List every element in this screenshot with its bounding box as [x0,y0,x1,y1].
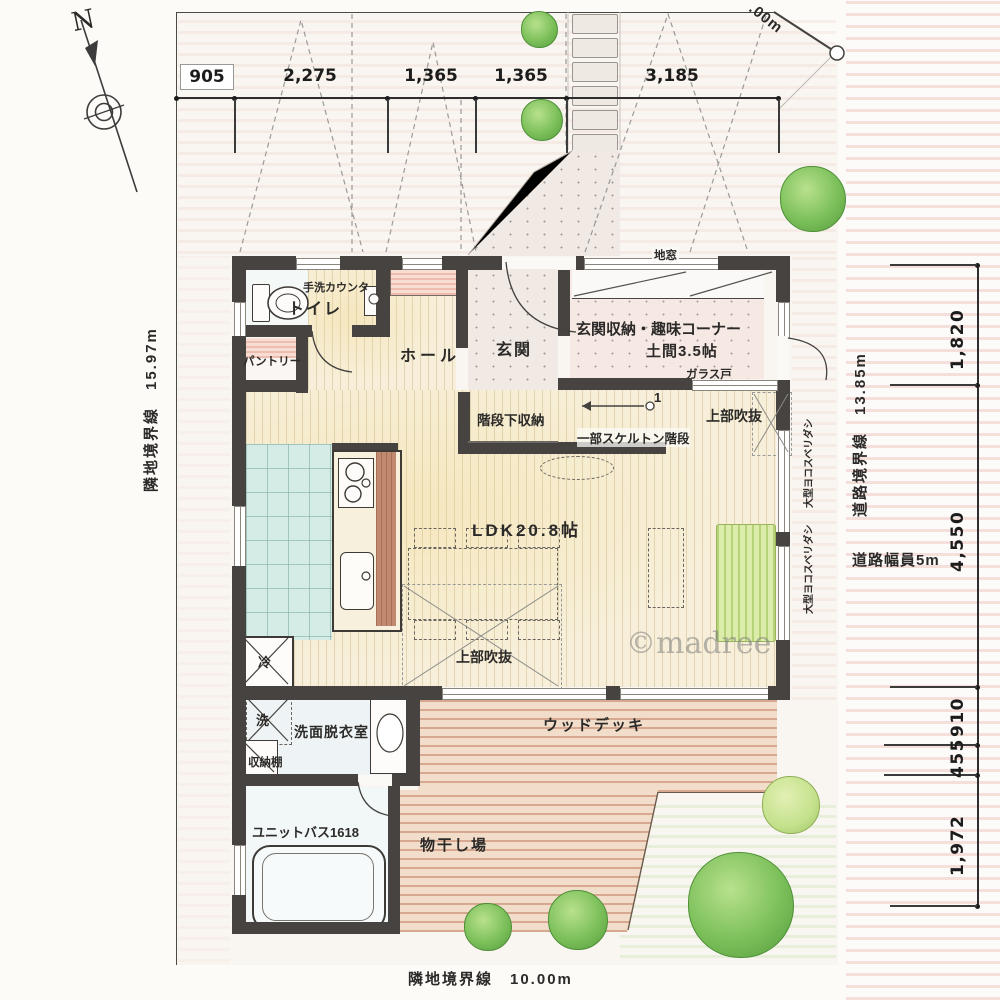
floor-window-label: 地窓 [652,247,679,263]
void-label-1: 上部吹抜 [706,406,762,426]
boundary-right-label: 道路境界線 13.85m [849,352,870,517]
wall-segment [776,380,790,430]
sliding-door [620,688,770,700]
bathtub-inner [262,853,374,921]
entrance-storage-label-1: 玄関収納・趣味コーナー [576,318,741,339]
entrance-storage-label-2: 土間3.5帖 [646,340,718,361]
tree-icon [688,852,794,958]
wall-segment [558,270,570,336]
entrance-door-opening [502,257,576,269]
dim-tick [234,99,236,153]
window-large-1 [778,430,790,534]
void-outline [402,584,562,690]
stepping-stone [572,38,618,58]
shoe-cabinet [390,269,458,296]
ldk-label: LDK20.8帖 [472,516,581,541]
boundary-bottom-label: 隣地境界線 10.00m [408,968,573,989]
wall-segment [458,442,576,454]
washroom-door-opening [358,775,392,785]
wood-deck-area [418,697,777,793]
wall-segment [456,270,468,348]
entrance-label: 玄関 [496,336,532,360]
stepping-stone [572,86,618,106]
shrub-icon [521,99,563,141]
pantry-label: パントリー [243,353,301,369]
dim-1365b: 1,365 [481,66,561,86]
dim-tick [475,99,477,153]
stove [338,458,374,508]
dim-1820: 1,820 [948,309,968,370]
wall-segment [352,325,376,337]
wall-segment [376,270,390,337]
wall-segment [718,256,776,270]
refrigerator-label: 冷 [258,652,271,671]
dim-tick [890,905,977,907]
window [296,258,342,270]
dim-tick [387,99,389,153]
stepping-stone [572,110,618,130]
dim-2275: 2,275 [270,66,350,86]
dim-line-right [977,265,979,907]
dim-tick [778,99,780,153]
window [234,302,246,338]
tv-board [648,528,684,608]
dim-tick [566,99,568,153]
boundary-left-label: 隣地境界線 15.97m [140,327,161,492]
sliding-door [442,688,608,700]
window-note-2: 大型ヨコスベリダシ [800,525,815,615]
window [234,845,246,897]
chair [414,528,456,548]
glass-door-label: ガラス戸 [686,366,732,382]
wall-segment [232,686,418,700]
wall-segment [232,256,246,302]
north-compass-icon [81,20,137,192]
window [778,302,790,338]
washroom-label: 洗面脱衣室 [294,722,369,742]
wall-segment [418,686,442,700]
skeleton-stair-label: 一部スケルトン階段 [577,428,690,447]
dim-tick [890,686,977,688]
dim-455: 455 [948,738,968,778]
wall-segment [340,256,402,270]
toilet-tank [252,284,270,322]
kitchen-counter-front [376,452,396,626]
window-large-2 [778,546,790,642]
dim-1972: 1,972 [948,815,968,876]
tree-icon [780,166,846,232]
north-label: N [69,4,97,38]
window [402,258,444,270]
watermark: ©madree [626,626,771,661]
drying-deck-area [400,790,658,932]
wall-segment [776,532,790,546]
unit-bath-label: ユニットバス1618 [252,822,359,841]
tree-icon [548,890,608,950]
dim-905: 905 [180,64,234,90]
void-label-2: 上部吹抜 [456,647,512,667]
drying-area-label: 物干し場 [420,834,488,855]
wall-segment [776,256,790,302]
kitchen-floor [246,444,332,640]
hall-label: ホール [400,342,460,366]
dim-3185: 3,185 [632,66,712,86]
kitchen-sink [340,552,374,610]
shrub-icon [521,11,558,48]
window [234,506,246,568]
ground-west-strip [178,256,230,962]
stepping-stone [572,14,618,34]
stair-number: 1 [654,390,661,405]
wall-segment [392,774,418,786]
wall-segment [246,325,312,337]
washer-label: 洗 [256,710,269,729]
window-note-1: 大型ヨコスベリダシ [800,419,815,509]
wall-segment [606,686,620,700]
side-door-opening [777,336,789,380]
dim-dot [174,96,179,101]
dim-910: 910 [948,697,968,737]
toilet-label: トイレ [288,295,342,319]
storage-shelf-label: 収納棚 [248,754,283,770]
stepping-stone [572,62,618,82]
green-mat [716,524,776,642]
wall-segment [232,566,246,845]
vanity-unit [370,694,410,774]
tree-icon [762,776,820,834]
dim-tick [890,384,977,386]
dim-tick [890,264,977,266]
wall-segment [768,686,790,700]
agari-kamachi-step [468,441,558,443]
hand-wash-label: 手洗カウンタ [303,279,369,295]
wall-segment [232,774,358,786]
dim-1365a: 1,365 [391,66,471,86]
road-width-label: 道路幅員5m [852,549,940,570]
bench [540,456,614,480]
wall-segment [576,256,584,270]
wall-segment [442,256,502,270]
wood-deck-label: ウッドデッキ [543,714,645,735]
dim-4550: 4,550 [948,511,968,572]
wall-segment [232,380,308,392]
wall-segment [388,786,400,934]
entrance-closet [572,270,764,299]
tree-icon [464,903,512,951]
wall-segment [406,686,420,786]
dim-line-top [176,97,780,99]
floor-plan-canvas: 905 2,275 1,365 1,365 3,185 1,820 4,550 … [0,0,1000,1000]
wall-segment [558,378,692,390]
wall-segment [232,922,400,934]
under-stair-label: 階段下収納 [477,409,545,429]
